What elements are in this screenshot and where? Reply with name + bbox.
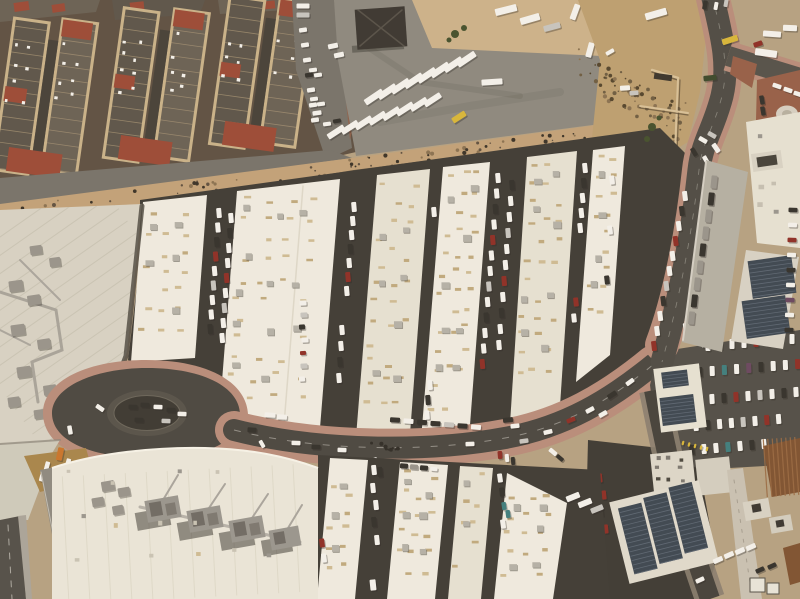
warm-light-overlay [0,0,800,599]
aerial-photo [0,0,800,599]
aerial-photo-canvas [0,0,800,599]
